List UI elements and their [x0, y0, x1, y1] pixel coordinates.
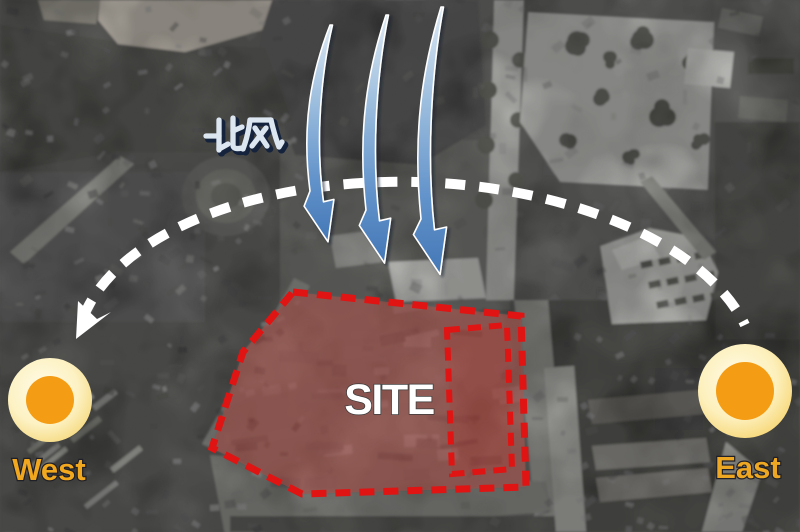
svg-text:SITE: SITE	[344, 376, 434, 424]
svg-text:West: West	[12, 452, 86, 487]
svg-text:East: East	[715, 450, 780, 485]
